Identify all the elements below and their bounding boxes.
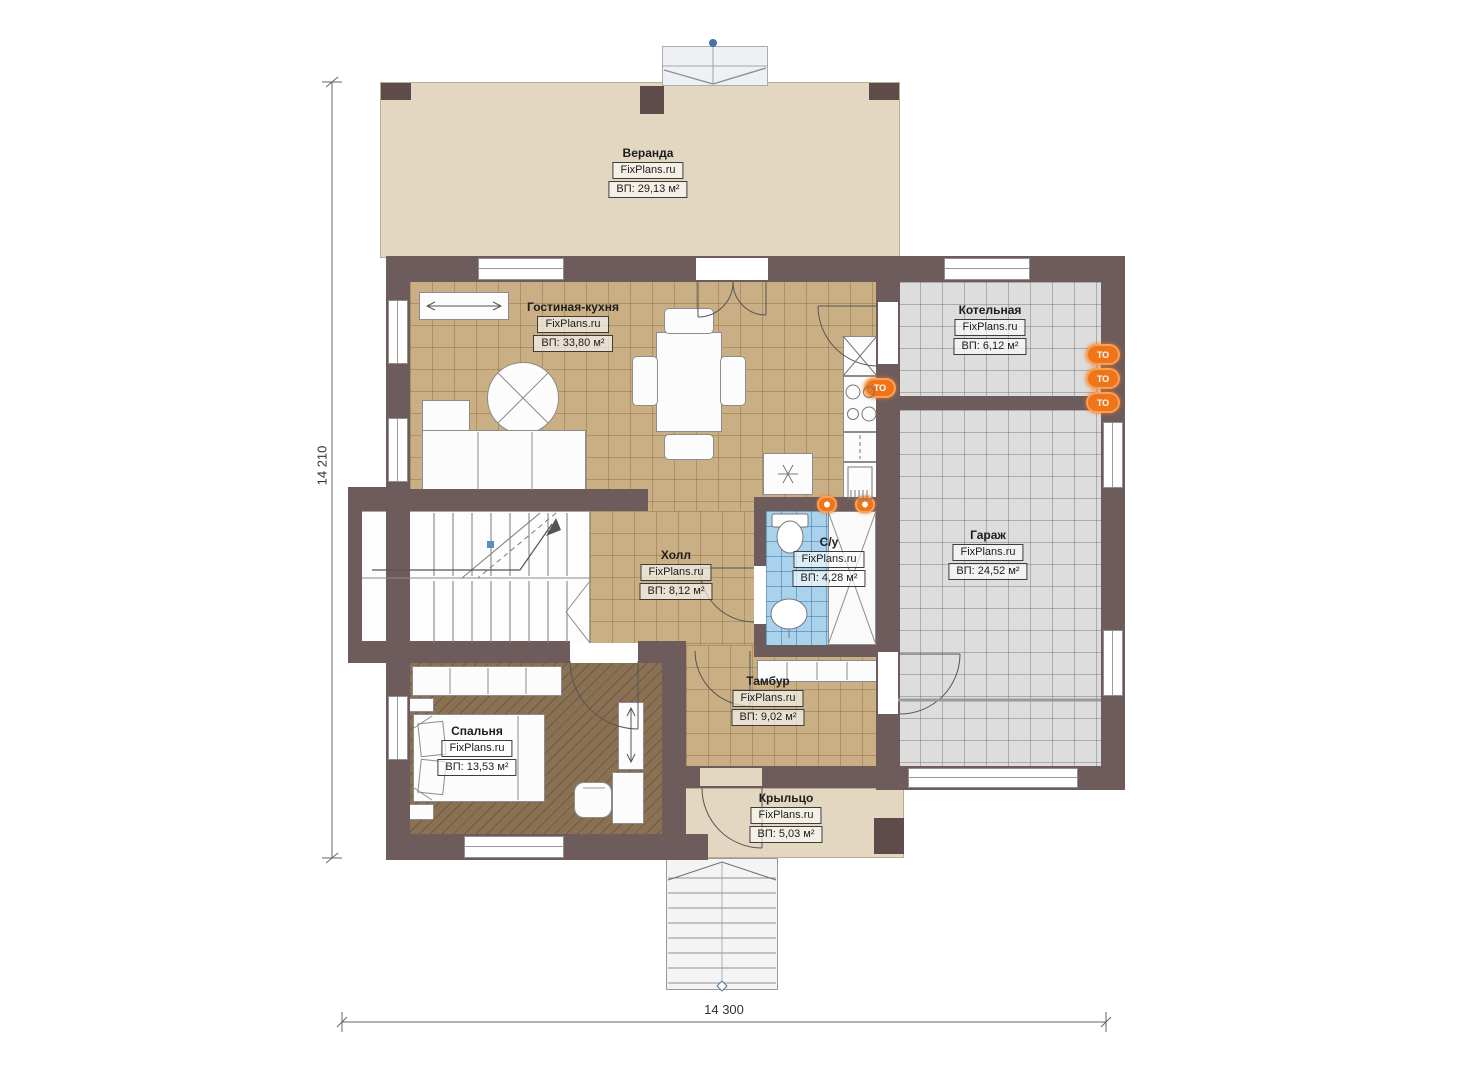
- room-label-hall: Холл FixPlans.ru ВП: 8,12 м²: [639, 548, 712, 600]
- wall-bathroom-bottom: [754, 645, 886, 657]
- heating-unit-label: ТО: [1097, 374, 1109, 384]
- nightstand-top: [408, 698, 434, 712]
- room-area: ВП: 24,52 м²: [948, 563, 1027, 580]
- veranda-post-left: [381, 83, 411, 100]
- room-brand: FixPlans.ru: [640, 564, 711, 581]
- heating-unit-icon: ТО: [1086, 392, 1120, 413]
- room-area: ВП: 5,03 м²: [749, 826, 822, 843]
- room-area: ВП: 4,28 м²: [792, 570, 865, 587]
- room-name: Тамбур: [731, 674, 804, 688]
- veranda-post-right: [869, 83, 899, 100]
- room-label-garage: Гараж FixPlans.ru ВП: 24,52 м²: [948, 528, 1027, 580]
- wall-stair-bay-bottom: [348, 641, 410, 663]
- wall-vestibule-bottom: [662, 766, 876, 788]
- entrance-steps: [666, 858, 778, 990]
- door-opening-boiler: [878, 302, 898, 364]
- bedroom-wardrobe-right: [618, 702, 644, 770]
- room-brand: FixPlans.ru: [441, 740, 512, 757]
- room-brand: FixPlans.ru: [612, 162, 683, 179]
- porch-post: [874, 818, 904, 854]
- veranda-steps: [662, 46, 768, 86]
- wall-bedroom-right: [662, 641, 686, 860]
- sofa-body: [422, 430, 586, 492]
- window-living-left-2: [388, 418, 408, 482]
- heating-unit-icon: ТО: [1086, 368, 1120, 389]
- kitchen-counter: [843, 432, 877, 462]
- heating-point-icon: [855, 496, 875, 513]
- heating-unit-icon: ТО: [1086, 344, 1120, 365]
- door-opening-porch: [700, 768, 762, 786]
- heating-unit-label: ТО: [1097, 398, 1109, 408]
- bedroom-wardrobe-top: [412, 666, 562, 696]
- room-brand: FixPlans.ru: [537, 316, 608, 333]
- room-name: Котельная: [953, 303, 1026, 317]
- room-brand: FixPlans.ru: [952, 544, 1023, 561]
- room-area: ВП: 6,12 м²: [953, 338, 1026, 355]
- room-area: ВП: 13,53 м²: [437, 759, 516, 776]
- room-label-bathroom: С/у FixPlans.ru ВП: 4,28 м²: [792, 535, 865, 587]
- room-label-veranda: Веранда FixPlans.ru ВП: 29,13 м²: [608, 146, 687, 198]
- room-name: Гостиная-кухня: [527, 300, 619, 314]
- dimension-height: 14 210: [314, 446, 329, 486]
- room-area: ВП: 33,80 м²: [533, 335, 612, 352]
- window-living-left-1: [388, 300, 408, 364]
- window-bedroom-bottom: [464, 836, 564, 858]
- garage-gate: [908, 768, 1078, 788]
- room-label-living-kitchen: Гостиная-кухня FixPlans.ru ВП: 33,80 м²: [527, 300, 619, 352]
- door-opening-veranda: [696, 258, 768, 280]
- garage-floor: [898, 410, 1101, 766]
- room-area: ВП: 8,12 м²: [639, 583, 712, 600]
- heating-unit-icon: ТО: [864, 378, 896, 398]
- room-brand: FixPlans.ru: [793, 551, 864, 568]
- door-opening-garage: [878, 652, 898, 714]
- room-name: С/у: [792, 535, 865, 549]
- room-label-boiler-room: Котельная FixPlans.ru ВП: 6,12 м²: [953, 303, 1026, 355]
- window-living-top: [478, 258, 564, 280]
- dining-chair-top: [664, 308, 714, 334]
- room-area: ВП: 29,13 м²: [608, 181, 687, 198]
- kitchen-cabinet: [843, 336, 877, 376]
- bedroom-chair: [574, 782, 612, 818]
- heating-point-icon: [817, 496, 837, 513]
- wall-boiler-garage: [898, 396, 1101, 410]
- wall-right: [1101, 256, 1125, 790]
- door-opening-bathroom: [754, 566, 766, 624]
- wall-bedroom-top-a: [386, 641, 570, 663]
- window-garage-right-2: [1103, 630, 1123, 696]
- room-label-vestibule: Тамбур FixPlans.ru ВП: 9,02 м²: [731, 674, 804, 726]
- wall-stair-bay-left: [348, 487, 362, 663]
- room-area: ВП: 9,02 м²: [731, 709, 804, 726]
- heating-unit-label: ТО: [874, 383, 886, 393]
- room-label-bedroom: Спальня FixPlans.ru ВП: 13,53 м²: [437, 724, 516, 776]
- room-name: Холл: [639, 548, 712, 562]
- dining-chair-right: [720, 356, 746, 406]
- room-brand: FixPlans.ru: [732, 690, 803, 707]
- wall-bedroom-top-b: [638, 641, 664, 663]
- round-table: [487, 362, 559, 434]
- dining-chair-left: [632, 356, 658, 406]
- room-brand: FixPlans.ru: [750, 807, 821, 824]
- wall-top-left: [386, 256, 880, 282]
- nightstand-bottom: [408, 804, 434, 820]
- room-name: Веранда: [608, 146, 687, 160]
- dimension-width: 14 300: [704, 1002, 744, 1017]
- heating-unit-label: ТО: [1097, 350, 1109, 360]
- veranda-post-middle: [640, 86, 664, 114]
- room-name: Крыльцо: [749, 791, 822, 805]
- wall-staircase-top: [386, 489, 648, 511]
- room-label-porch: Крыльцо FixPlans.ru ВП: 5,03 м²: [749, 791, 822, 843]
- bedroom-desk: [612, 772, 644, 824]
- room-brand: FixPlans.ru: [954, 319, 1025, 336]
- window-garage-right-1: [1103, 422, 1123, 488]
- dining-table: [656, 332, 722, 432]
- dining-chair-bottom: [664, 434, 714, 460]
- fridge: [763, 453, 813, 495]
- floor-plan: ТО ТО ТО ТО: [0, 0, 1474, 1080]
- room-name: Спальня: [437, 724, 516, 738]
- window-boiler-top: [944, 258, 1030, 280]
- room-name: Гараж: [948, 528, 1027, 542]
- door-opening-bedroom: [570, 643, 638, 661]
- tv-stand: [419, 292, 509, 320]
- window-bedroom-left: [388, 696, 408, 760]
